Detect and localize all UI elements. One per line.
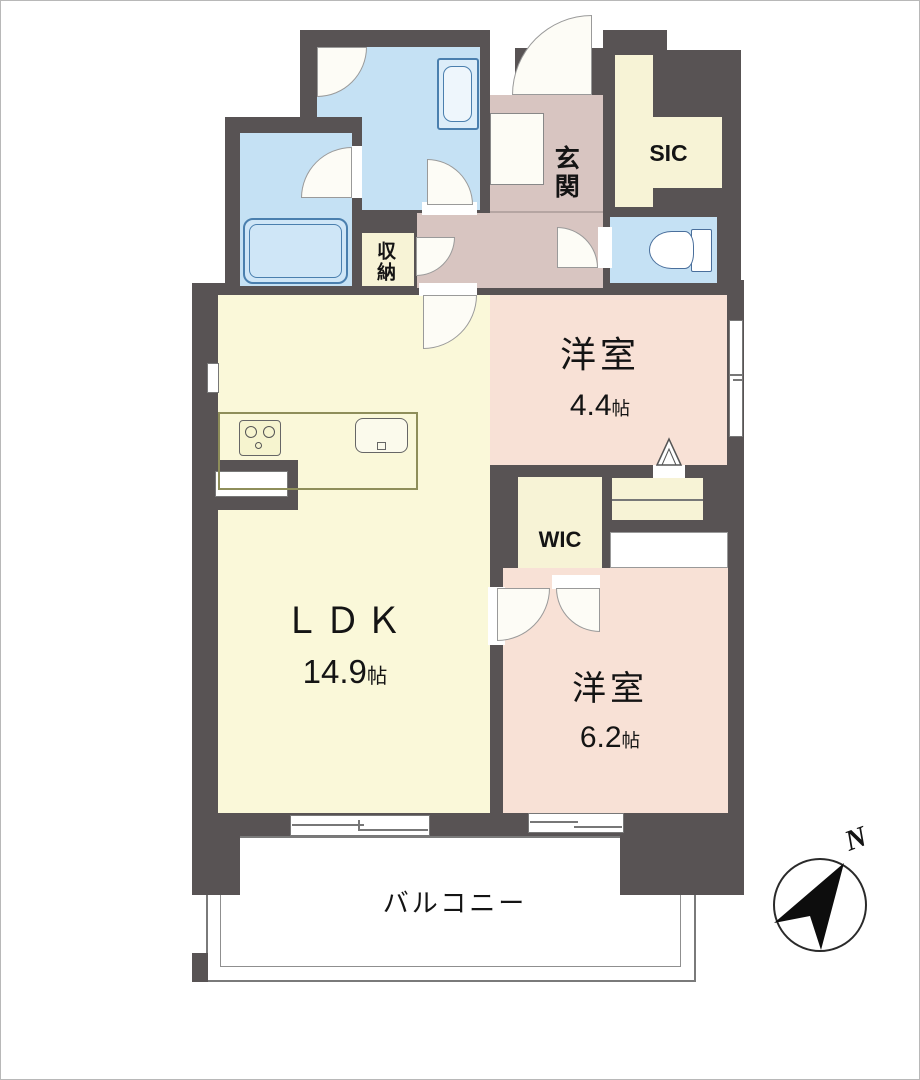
burner bbox=[263, 426, 275, 438]
toilet-door-opening bbox=[598, 227, 612, 268]
room-label-western-62: 洋室 bbox=[505, 672, 715, 708]
floorplan-canvas: ＬＤＫ 14.9帖 洋室 4.4帖 洋室 6.2帖 WIC SIC 玄関 収納 … bbox=[0, 0, 920, 1080]
window-sash-line bbox=[574, 826, 622, 828]
room-label-wic: WIC bbox=[518, 528, 602, 551]
room-western-44 bbox=[490, 295, 727, 465]
room-size-western-62: 6.2帖 bbox=[505, 722, 715, 754]
room62-balcony-window bbox=[528, 813, 624, 833]
wall bbox=[192, 813, 240, 895]
bath-door-opening bbox=[352, 146, 362, 198]
stove-icon bbox=[239, 420, 281, 456]
window-sash-line bbox=[358, 829, 428, 831]
size-unit: 帖 bbox=[622, 730, 641, 751]
kitchen-sink-icon bbox=[355, 418, 408, 453]
toilet-tank bbox=[691, 229, 712, 272]
room-ldk bbox=[218, 295, 490, 813]
toilet-bowl bbox=[649, 231, 694, 269]
left-wall-window bbox=[207, 363, 219, 393]
size-value: 6.2 bbox=[580, 721, 622, 754]
size-value: 14.9 bbox=[303, 653, 367, 690]
toilet-icon bbox=[649, 228, 713, 274]
folding-door-icon bbox=[650, 436, 688, 466]
bathtub-icon bbox=[243, 218, 348, 284]
room-label-ldk: ＬＤＫ bbox=[230, 602, 460, 640]
bathtub-inner bbox=[249, 224, 342, 278]
shoe-cabinet bbox=[490, 113, 544, 185]
size-unit: 帖 bbox=[367, 665, 387, 688]
wic-door-opening bbox=[552, 575, 600, 589]
ldk-balcony-window bbox=[290, 815, 430, 836]
room-label-entrance: 玄関 bbox=[552, 142, 578, 204]
room-label-storage: 収納 bbox=[374, 236, 394, 288]
washing-machine-icon bbox=[437, 58, 479, 130]
size-unit: 帖 bbox=[612, 398, 631, 419]
room-label-western-44: 洋室 bbox=[490, 336, 710, 374]
window-sash-line bbox=[530, 821, 578, 823]
faucet bbox=[377, 442, 386, 450]
closet-44-shelf-line bbox=[612, 499, 703, 501]
closet44-door-opening bbox=[653, 465, 685, 478]
washer-pan-inner bbox=[443, 66, 472, 122]
size-value: 4.4 bbox=[570, 389, 612, 422]
room-label-balcony: バルコニー bbox=[300, 890, 610, 917]
entrance-doorway bbox=[490, 45, 515, 95]
room-size-ldk: 14.9帖 bbox=[230, 655, 460, 690]
wall bbox=[192, 953, 208, 982]
window-sash-line bbox=[733, 379, 743, 381]
window-sash-line bbox=[292, 824, 364, 826]
window-sash-tick bbox=[358, 820, 360, 830]
entrance-step-line bbox=[490, 211, 603, 213]
closet-62 bbox=[610, 532, 728, 568]
compass-arrow-icon bbox=[773, 858, 867, 952]
burner bbox=[245, 426, 257, 438]
room-label-sic: SIC bbox=[615, 141, 722, 165]
window-sash-line bbox=[729, 374, 743, 376]
burner-small bbox=[255, 442, 262, 449]
room-size-western-44: 4.4帖 bbox=[490, 390, 710, 422]
